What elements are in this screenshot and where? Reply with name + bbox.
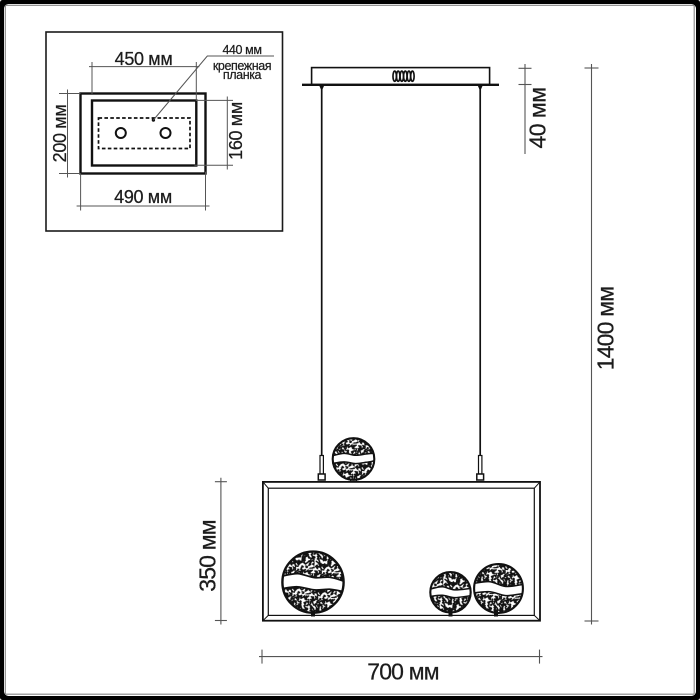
svg-text:200 мм: 200 мм [50, 105, 70, 163]
svg-text:450 мм: 450 мм [115, 49, 173, 69]
svg-text:490 мм: 490 мм [114, 187, 172, 207]
svg-text:700 мм: 700 мм [367, 659, 439, 685]
svg-text:160 мм: 160 мм [226, 102, 246, 160]
svg-text:1400 мм: 1400 мм [593, 287, 619, 371]
svg-text:440 мм: 440 мм [222, 43, 261, 57]
svg-text:планка: планка [223, 68, 262, 82]
svg-text:40 мм: 40 мм [525, 87, 551, 148]
svg-text:350 мм: 350 мм [195, 520, 221, 592]
